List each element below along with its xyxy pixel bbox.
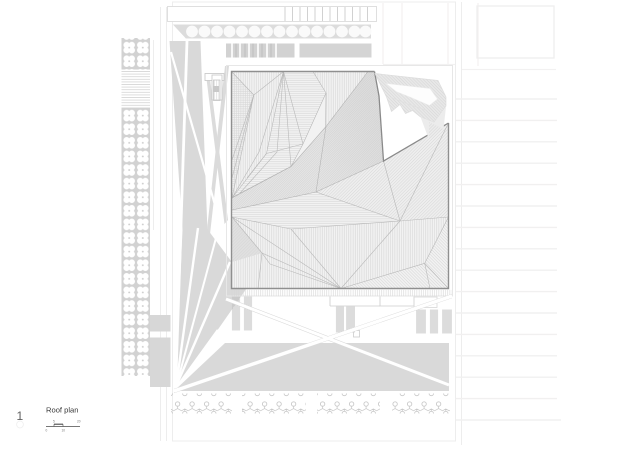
svg-text:0: 0 (46, 429, 48, 433)
svg-text:Roof plan: Roof plan (46, 406, 79, 415)
svg-text:10: 10 (62, 429, 66, 433)
svg-text:5: 5 (53, 419, 55, 423)
svg-text:1: 1 (17, 409, 24, 423)
svg-text:20: 20 (77, 419, 81, 423)
